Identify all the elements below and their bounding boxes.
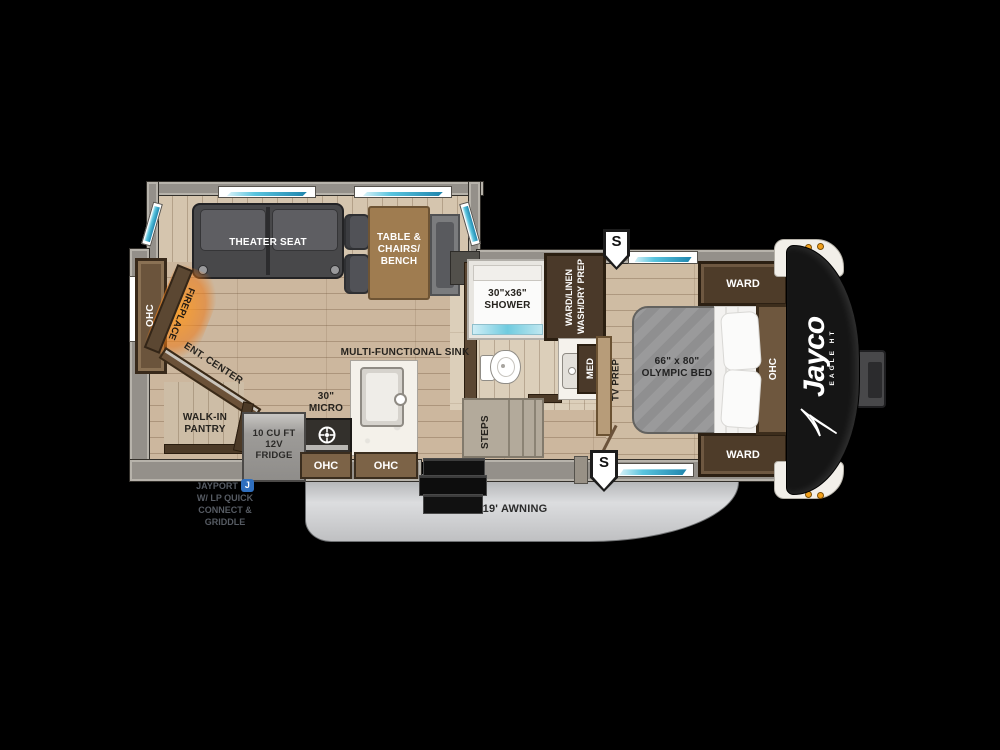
- ohc-kitchen-right: OHC: [354, 452, 418, 479]
- dinette-chair: [344, 214, 370, 250]
- fridge-label: 10 CU FT 12V FRIDGE: [242, 428, 306, 462]
- bottom-wall-mid: [479, 459, 580, 482]
- jayport-line1: JAYPORT: [196, 480, 238, 492]
- jayport-line2: W/ LP QUICK: [170, 492, 280, 504]
- faucet-icon: [394, 393, 407, 406]
- floorplan: 19' AWNING JAYPORT J W/ LP QUICK CONNECT…: [0, 0, 1000, 750]
- ohc-kitchen-left-label: OHC: [314, 460, 338, 472]
- bedroom-door-jamb: [574, 456, 588, 484]
- ward-front-top-label: WARD: [726, 278, 760, 290]
- ohc-kitchen-left: OHC: [300, 452, 352, 479]
- entry-steps: [419, 456, 487, 514]
- theater-seat-label: THEATER SEAT: [202, 237, 334, 249]
- jayco-eagle-icon: [798, 405, 838, 439]
- sink-label: MULTI-FUNCTIONAL SINK: [316, 347, 494, 359]
- bed-label: 66" x 80" OLYMPIC BED: [634, 356, 720, 380]
- clearance-light-icon: [817, 492, 824, 499]
- micro-fan-icon: [318, 426, 336, 444]
- kitchen-sink: [360, 367, 404, 427]
- cupholder-icon: [330, 265, 340, 275]
- ward-linen-label-2: WASH/DRY PREP: [576, 259, 586, 334]
- interior-steps: [462, 398, 544, 458]
- jayco-logo: Jayco EAGLE HT: [798, 298, 838, 458]
- jayport-line4: GRIDDLE: [170, 516, 280, 528]
- microwave: [300, 418, 352, 454]
- s-marker-top-label: S: [603, 233, 630, 250]
- bed-pillow: [720, 311, 762, 372]
- ohc-bedroom: OHC: [756, 304, 790, 435]
- dinette-label: TABLE & CHAIRS/ BENCH: [368, 232, 430, 267]
- bedroom-top-window: [628, 251, 698, 264]
- shower-glass: [472, 324, 543, 335]
- slide-window-2: [354, 186, 452, 198]
- steps-label: STEPS: [478, 408, 494, 456]
- kitchen-counter: [350, 360, 418, 456]
- slide-window-1: [218, 186, 316, 198]
- shower-label: 30"x36" SHOWER: [469, 288, 546, 312]
- dinette-chair: [344, 254, 370, 294]
- ohc-kitchen-right-label: OHC: [374, 460, 398, 472]
- jayport-line3: CONNECT &: [170, 504, 280, 516]
- ward-front-bottom-label: WARD: [726, 449, 760, 461]
- jayco-brand: Jayco: [801, 317, 829, 397]
- tv-prep-label: TV PREP: [608, 348, 624, 412]
- med-label: MED: [585, 358, 596, 379]
- bedroom-bottom-window: [612, 463, 694, 477]
- clearance-light-icon: [817, 243, 824, 250]
- ohc-bedroom-label: OHC: [768, 358, 779, 380]
- ward-linen-closet: WARD/LINEN WASH/DRY PREP: [544, 253, 606, 341]
- s-marker-bottom-label: S: [590, 454, 618, 471]
- jayport-badge: J: [241, 479, 254, 492]
- bed-pillow: [720, 369, 762, 430]
- faucet-icon: [568, 367, 576, 375]
- ward-linen-label-1: WARD/LINEN: [564, 269, 574, 326]
- jayport-note: JAYPORT J W/ LP QUICK CONNECT & GRIDDLE: [170, 479, 280, 535]
- micro-label: 30" MICRO: [300, 391, 352, 415]
- rear-ohc-label: OHC: [140, 280, 162, 352]
- pantry-label: WALK-IN PANTRY: [164, 412, 246, 436]
